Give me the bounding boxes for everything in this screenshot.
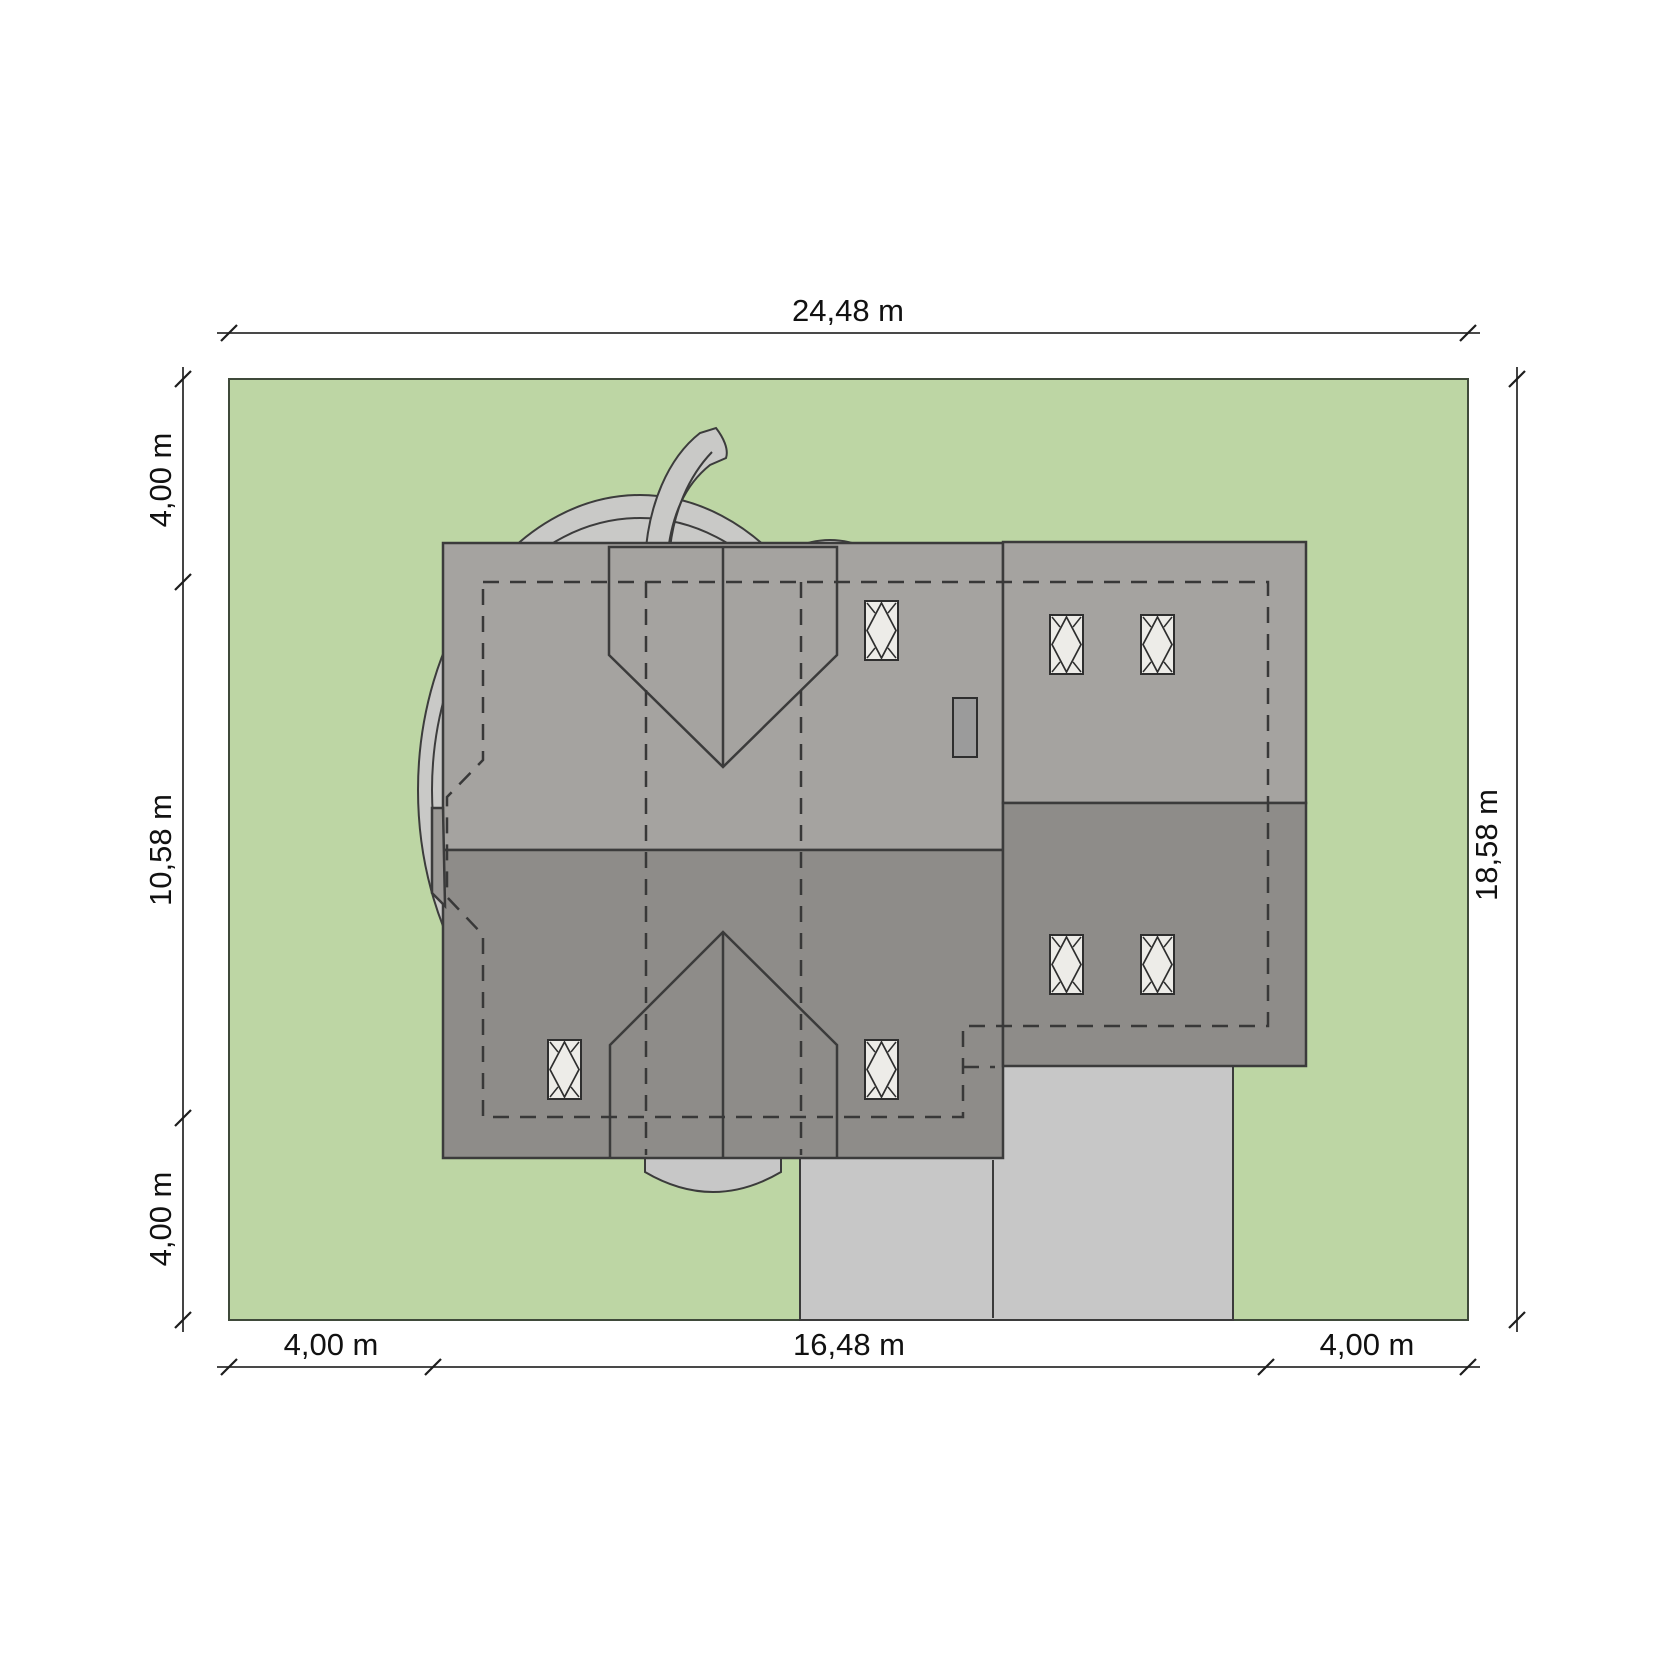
dimension-left: 4,00 m 10,58 m 4,00 m: [143, 367, 191, 1332]
chimney: [953, 698, 977, 757]
dimension-bottom-middle-label: 16,48 m: [793, 1327, 905, 1362]
dimension-top-label: 24,48 m: [792, 293, 904, 328]
site-plan-drawing: 24,48 m 4,00 m 10,58 m 4,00 m 18,58 m 4,…: [0, 0, 1680, 1680]
dimension-left-top-label: 4,00 m: [143, 433, 178, 528]
skylight-2: [1050, 615, 1083, 674]
dimension-bottom-left-label: 4,00 m: [284, 1327, 379, 1362]
skylight-1: [865, 601, 898, 660]
skylight-5: [1141, 935, 1174, 994]
dimension-bottom-right-label: 4,00 m: [1320, 1327, 1415, 1362]
dimension-right-label: 18,58 m: [1469, 789, 1504, 901]
dimension-left-middle-label: 10,58 m: [143, 794, 178, 906]
skylight-3: [1141, 615, 1174, 674]
bay-window-roof: [432, 808, 445, 906]
skylight-6: [865, 1040, 898, 1099]
skylight-4: [1050, 935, 1083, 994]
skylight-7: [548, 1040, 581, 1099]
dimension-left-bottom-label: 4,00 m: [143, 1172, 178, 1267]
